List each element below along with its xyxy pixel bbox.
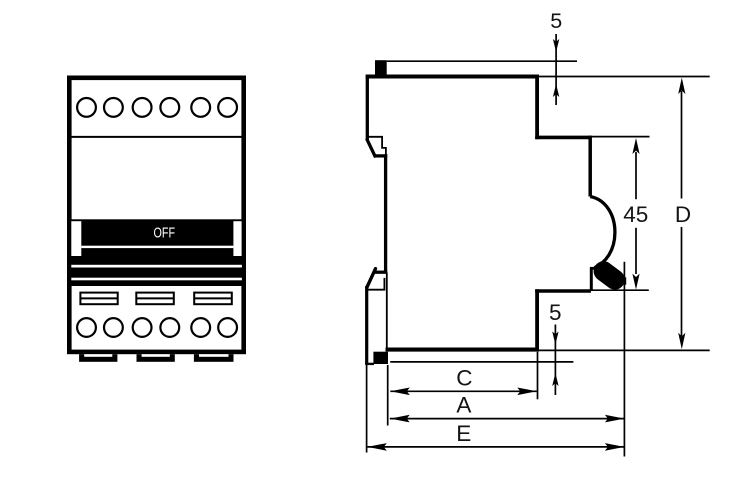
svg-text:5: 5 <box>550 9 562 33</box>
svg-text:C: C <box>456 365 472 390</box>
svg-text:A: A <box>456 393 471 418</box>
svg-text:OFF: OFF <box>154 225 176 241</box>
svg-text:E: E <box>456 421 471 446</box>
svg-text:5: 5 <box>549 300 562 325</box>
svg-text:D: D <box>675 202 691 227</box>
svg-text:45: 45 <box>623 202 648 227</box>
